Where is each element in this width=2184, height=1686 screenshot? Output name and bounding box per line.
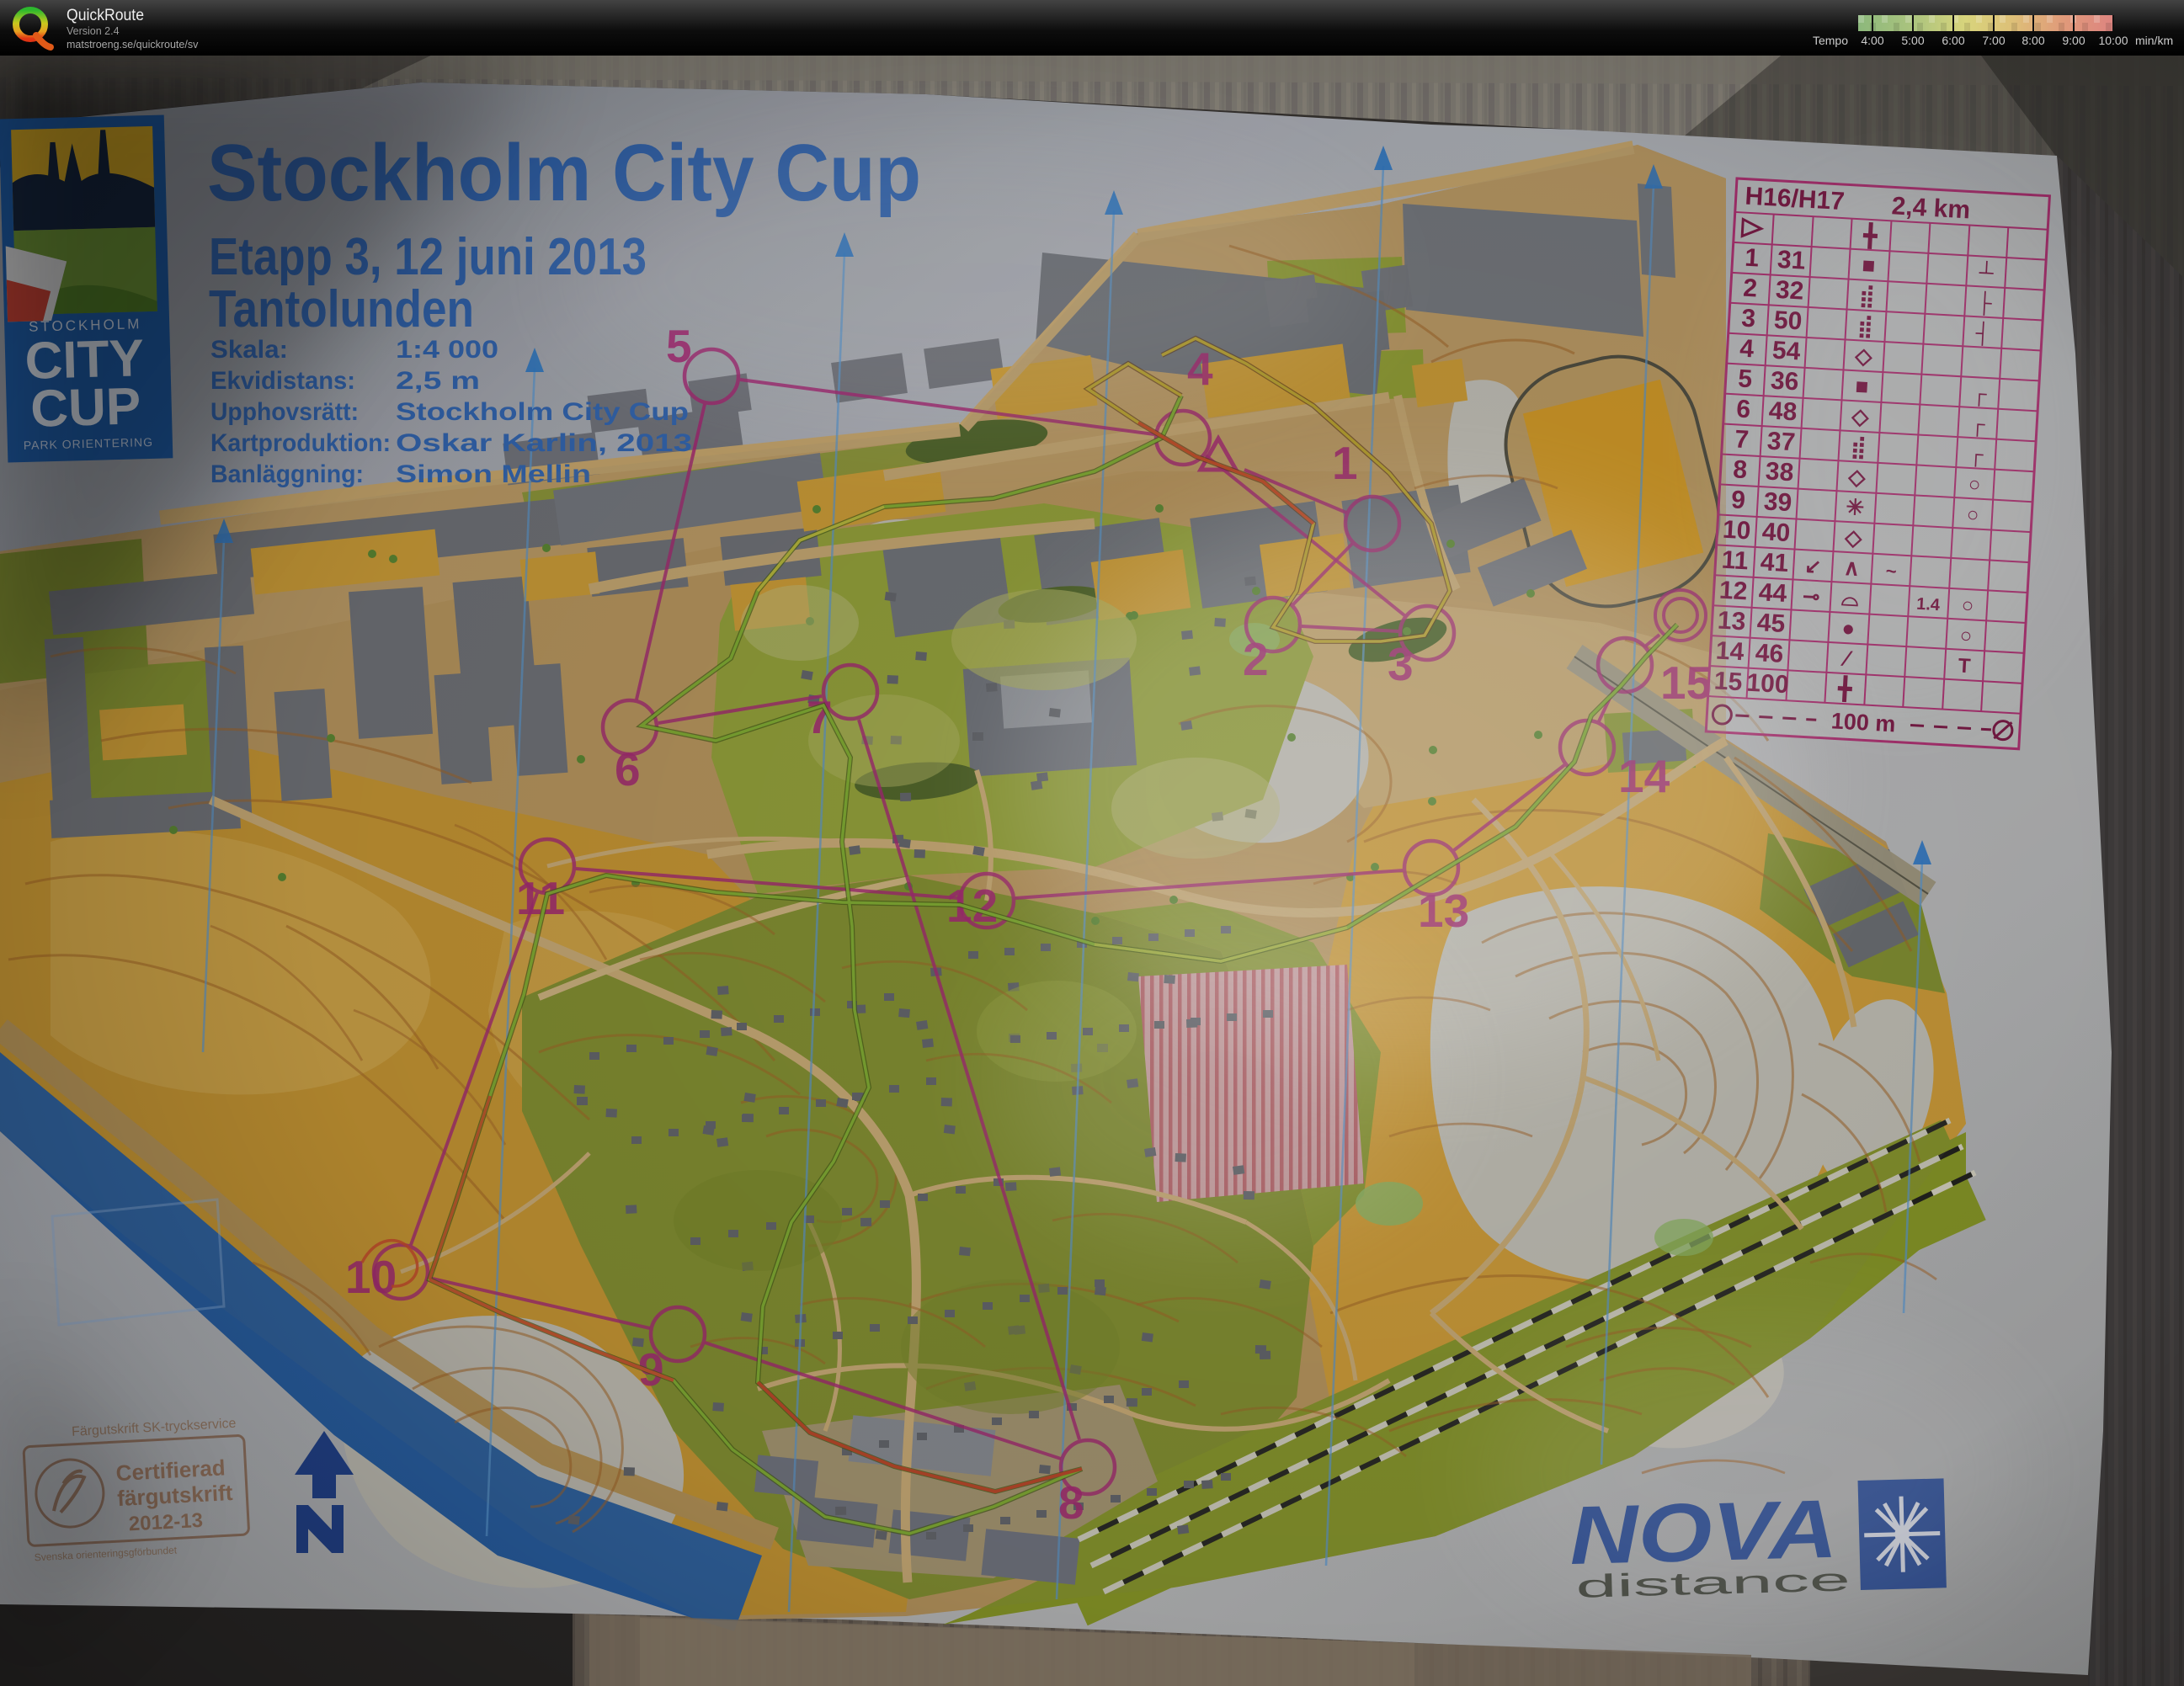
- svg-text:Version 2.4: Version 2.4: [67, 25, 120, 37]
- svg-text:9:00: 9:00: [2062, 34, 2085, 47]
- svg-text:Tempo: Tempo: [1813, 34, 1848, 47]
- svg-text:5:00: 5:00: [1901, 34, 1924, 47]
- svg-text:QuickRoute: QuickRoute: [67, 7, 144, 24]
- svg-text:10:00: 10:00: [2098, 34, 2128, 47]
- svg-text:min/km: min/km: [2135, 34, 2173, 47]
- svg-text:matstroeng.se/quickroute/sv: matstroeng.se/quickroute/sv: [67, 39, 199, 51]
- svg-text:4:00: 4:00: [1861, 34, 1883, 47]
- svg-text:8:00: 8:00: [2022, 34, 2044, 47]
- svg-text:7:00: 7:00: [1982, 34, 2005, 47]
- svg-text:6:00: 6:00: [1942, 34, 1964, 47]
